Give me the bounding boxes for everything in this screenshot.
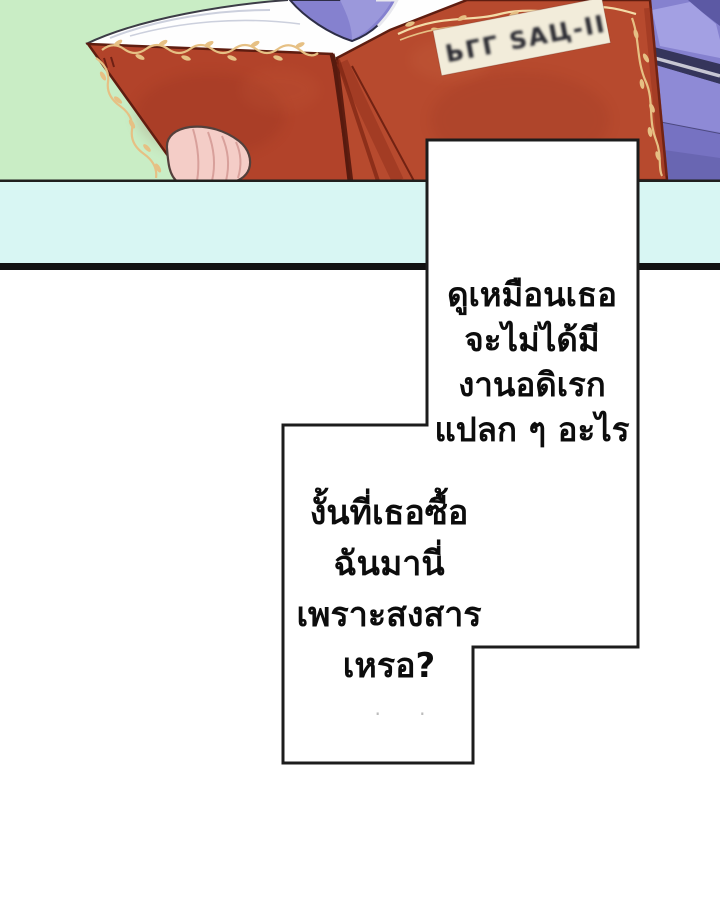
bubble-1-line-1: ดูเหมือนเธอ bbox=[424, 272, 640, 317]
bubble-1-line-2: จะไม่ได้มี bbox=[424, 317, 640, 362]
comic-page: ЬГГ ЅАЦ-ІІ ดูเหมือนเธอ จะไม่ได้มี งานอดิ… bbox=[0, 0, 720, 900]
table-edge-line bbox=[0, 180, 720, 183]
faint-dots: · · bbox=[368, 704, 448, 724]
bubble-2-line-3: เพราะสงสาร bbox=[284, 590, 494, 641]
scene-panel: ЬГГ ЅАЦ-ІІ bbox=[0, 0, 720, 275]
bubble-2-line-1: งั้นที่เธอซื้อ bbox=[284, 488, 494, 539]
table-surface bbox=[0, 182, 720, 263]
speech-bubble-1-text: ดูเหมือนเธอ จะไม่ได้มี งานอดิเรก แปลก ๆ … bbox=[424, 272, 640, 452]
bubble-2-line-2: ฉันมานี่ bbox=[284, 539, 494, 590]
bubble-2-line-4: เหรอ? bbox=[284, 641, 494, 692]
bubble-1-line-3: งานอดิเรก bbox=[424, 362, 640, 407]
panel-bottom-border bbox=[0, 263, 720, 270]
bubble-1-line-4: แปลก ๆ อะไร bbox=[424, 407, 640, 452]
speech-bubble-2-text: งั้นที่เธอซื้อ ฉันมานี่ เพราะสงสาร เหรอ? bbox=[284, 488, 494, 692]
